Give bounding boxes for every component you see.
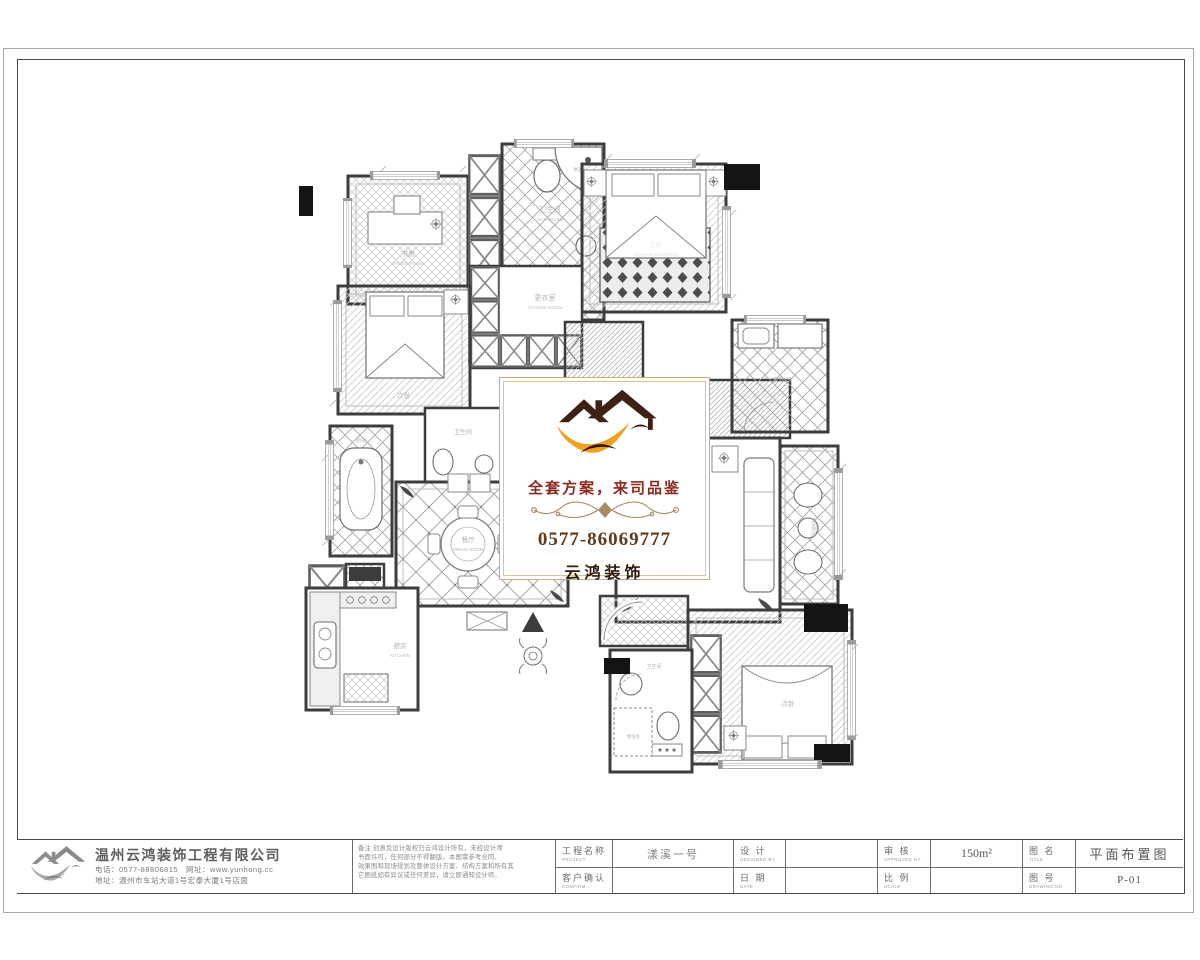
company-address: 地址：温州市车站大道1号宏泰大厦1号店面 [95,876,248,886]
design-value-cell [785,840,877,867]
title-block: 温州云鸿装饰工程有限公司 电话：0577-88806815 网址：www.yun… [17,839,1183,893]
watermark-card: 全套方案，来司品鉴 0577-86069777 云鸿装饰 [499,377,710,580]
project-value-cell: 漾溪一号 [612,840,733,867]
company-cell: 温州云鸿装饰工程有限公司 电话：0577-88806815 网址：www.yun… [17,840,352,893]
svg-text:卫生间: 卫生间 [454,428,472,436]
project-label-cell: 工程名称 PROJECT [555,840,612,867]
date-value [786,867,877,893]
brand-name: 云鸿装饰 [500,559,709,583]
yunhong-logo-icon [545,384,665,470]
svg-text:阳台: 阳台 [355,436,367,444]
date-label: 日 期 [740,871,785,884]
svg-text:CHANGE ROOM: CHANGE ROOM [528,305,563,310]
drawing-title: 平面布置图 [1076,840,1183,867]
no-label: 图 号 [1029,871,1075,884]
approve-label: 审 核 [884,844,930,857]
date-label-en: DATE [740,884,785,889]
scale-label-cell: 比 例 SCALE [877,867,930,893]
notes-cell: 备注:创意及设计版权归云鸿设计所有，未经设计师 书面许可，任何部分不得翻版。本图… [352,840,555,893]
confirm-label-en: CONFIRM [562,884,612,889]
slogan-text: 全套方案，来司品鉴 [500,477,709,498]
design-value [786,840,877,867]
confirm-value [613,867,733,893]
drawing-sheet: 书房 STUDY ROOM 淋浴房 卫生间 BATHROOM [0,0,1200,960]
note-line: 它图纸如有异议或任何差异，请立即通知设计师。 [358,871,550,880]
scale-value [931,867,1022,893]
porch-storage [600,596,688,646]
scale-label: 比 例 [884,871,930,884]
svg-text:更衣室: 更衣室 [535,293,556,302]
project-label-en: PROJECT [562,857,612,862]
scale-value-cell [930,867,1022,893]
approve-label-en: APPROVED BY [884,857,930,862]
room-bedroom-bottom: 次卧 [688,610,852,764]
room-leisure-balcony: 休闲阳台 [780,446,838,604]
design-label-cell: 设 计 DESIGNED BY [733,840,785,867]
svg-text:主卧: 主卧 [650,240,664,249]
room-laundry: 家政间 [732,320,828,432]
company-logo-icon [25,843,89,890]
svg-text:KITCHEN: KITCHEN [390,653,410,658]
approve-label-cell: 审 核 APPROVED BY [877,840,930,867]
note-line: 书面许可，任何部分不得翻版。本图需参考合同、 [358,853,550,862]
drawing-no-cell: P-01 [1075,867,1183,893]
svg-text:书房: 书房 [401,249,415,258]
design-label-en: DESIGNED BY [740,857,785,862]
svg-text:餐厅: 餐厅 [462,535,476,544]
svg-text:淋浴房: 淋浴房 [626,733,640,740]
svg-text:休闲阳台: 休闲阳台 [810,518,817,538]
room-kitchen: 厨房 KITCHEN [306,588,418,710]
svg-text:卫生间: 卫生间 [540,205,561,214]
room-bath-middle: 卫生间 [425,408,503,482]
room-balcony-left: 阳台 [330,426,392,556]
title-label-en: TITLE [1029,857,1075,862]
confirm-label-cell: 客户确认 CONFIRM [555,867,612,893]
note-line: 效果图和现场规划及整体设计方案、结构方案和所有其 [358,862,550,871]
svg-text:MASTER BEDROOM: MASTER BEDROOM [634,252,678,257]
drawing-no: P-01 [1076,867,1183,893]
no-label-cell: 图 号 DRAWING NO [1022,867,1075,893]
room-bedroom-left: 次卧 [338,286,470,414]
company-contact: 电话：0577-88806815 网址：www.yunhong.cc [95,865,273,875]
company-name: 温州云鸿装饰工程有限公司 [95,845,281,865]
ornament-divider [526,498,684,522]
svg-text:次卧: 次卧 [782,699,796,708]
title-label-cell: 图 名 TITLE [1022,840,1075,867]
confirm-label: 客户确认 [562,871,612,884]
svg-text:DINING ROOM: DINING ROOM [453,547,484,552]
svg-text:次卧: 次卧 [397,391,411,400]
note-line: 备注:创意及设计版权归云鸿设计所有，未经设计师 [358,844,550,853]
date-value-cell [785,867,877,893]
scale-label-en: SCALE [884,884,930,889]
no-label-en: DRAWING NO [1029,884,1075,889]
phone-number: 0577-86069777 [500,529,709,551]
project-value: 漾溪一号 [613,840,733,867]
area-value-cell: 150m² [930,840,1022,867]
svg-text:厨房: 厨房 [394,641,407,650]
svg-text:家政间: 家政间 [773,376,791,384]
date-label-cell: 日 期 DATE [733,867,785,893]
project-label: 工程名称 [562,844,612,857]
entry-arrow-icon [467,612,547,674]
confirm-value-cell [612,867,733,893]
title-label: 图 名 [1029,844,1075,857]
svg-text:BATHROOM: BATHROOM [537,217,563,222]
design-label: 设 计 [740,844,785,857]
drawing-title-cell: 平面布置图 [1075,840,1183,867]
room-master-bedroom: 主卧 MASTER BEDROOM [582,164,726,312]
svg-text:STUDY ROOM: STUDY ROOM [393,261,424,266]
area-value: 150m² [931,840,1022,867]
svg-text:卫生间: 卫生间 [646,663,661,670]
